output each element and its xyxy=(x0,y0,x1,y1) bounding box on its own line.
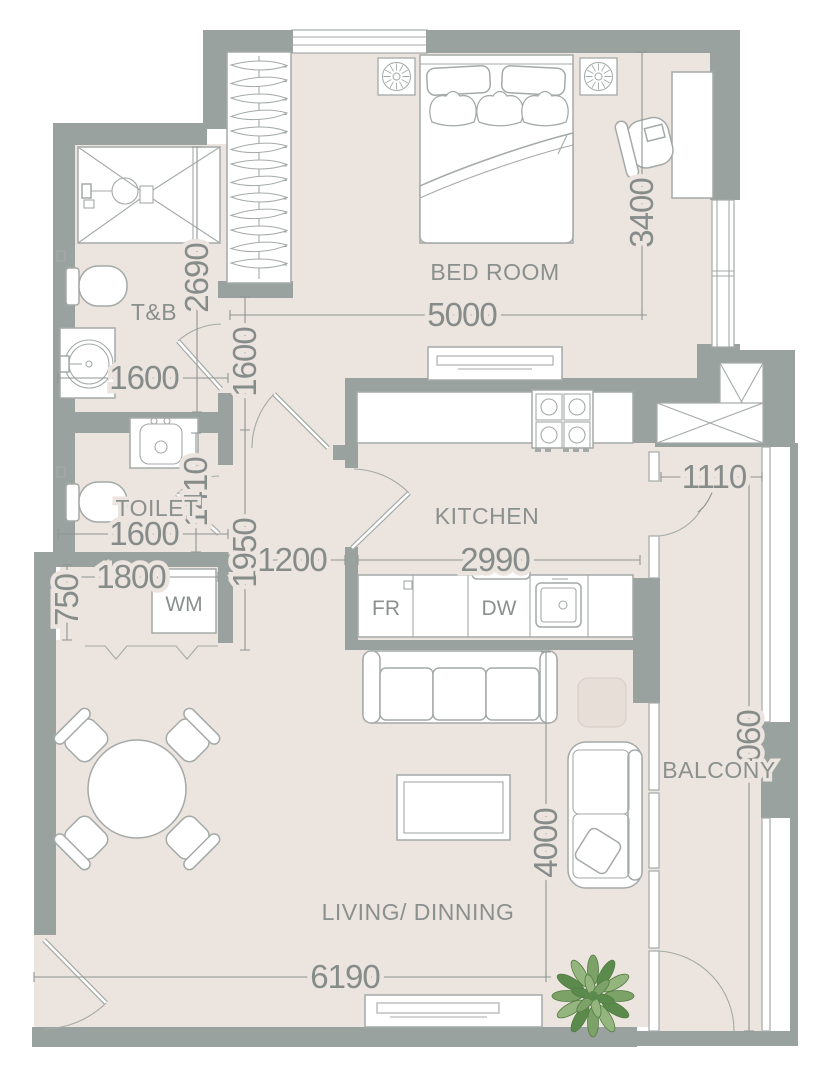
room-label-balcony: BALCONY xyxy=(662,757,775,783)
dim-hall-upper: 1600 xyxy=(226,327,263,397)
appliance-label-fridge: FR xyxy=(372,597,400,620)
dim-closet-width: 1800 xyxy=(96,558,166,595)
window-top xyxy=(289,30,430,53)
room-label-living: LIVING/ DINNING xyxy=(322,899,515,925)
room-label-toilet: TOILET xyxy=(115,495,198,521)
shaft-box-lower xyxy=(657,403,763,443)
appliance-label-dishwasher: DW xyxy=(482,597,517,620)
armchair xyxy=(568,742,642,888)
room-label-kitchen: KITCHEN xyxy=(435,503,539,529)
floor-plan-svg: 5000 3400 2690 1600 1600 1410 1600 1800 … xyxy=(0,0,829,1080)
dim-living-depth: 4000 xyxy=(527,808,564,878)
side-table xyxy=(578,678,626,727)
dim-bath-width: 1600 xyxy=(109,359,179,396)
dim-bath-height: 2690 xyxy=(178,243,215,313)
floor-plan: 5000 3400 2690 1600 1600 1410 1600 1800 … xyxy=(0,0,829,1080)
dim-bedroom-width: 5000 xyxy=(427,296,497,333)
window-bedroom-east xyxy=(712,200,734,347)
dim-living-width: 6190 xyxy=(310,958,380,995)
desk xyxy=(672,72,713,198)
dim-hall-width: 1200 xyxy=(257,541,327,578)
tv-console-living xyxy=(365,995,542,1027)
vanity-sink-bath xyxy=(60,328,115,398)
ceiling-fan-left-icon xyxy=(378,58,415,95)
bed xyxy=(420,55,573,243)
shower xyxy=(78,147,220,243)
appliance-label-wm: WM xyxy=(165,593,202,616)
sofa xyxy=(363,651,557,723)
room-label-bedroom: BED ROOM xyxy=(430,259,559,285)
wardrobe xyxy=(227,52,291,283)
coffee-table xyxy=(397,775,510,840)
dim-bedroom-depth: 3400 xyxy=(623,178,660,248)
dim-kitchen-width: 2990 xyxy=(460,541,530,578)
dim-closet-depth: 750 xyxy=(48,573,85,626)
room-label-bath: T&B xyxy=(131,299,177,325)
tv-console-bedroom xyxy=(428,347,562,380)
dim-balcony-door: 1110 xyxy=(682,458,747,495)
kitchen-sink xyxy=(536,579,581,627)
ceiling-fan-right-icon xyxy=(580,58,617,95)
stove xyxy=(532,390,593,450)
